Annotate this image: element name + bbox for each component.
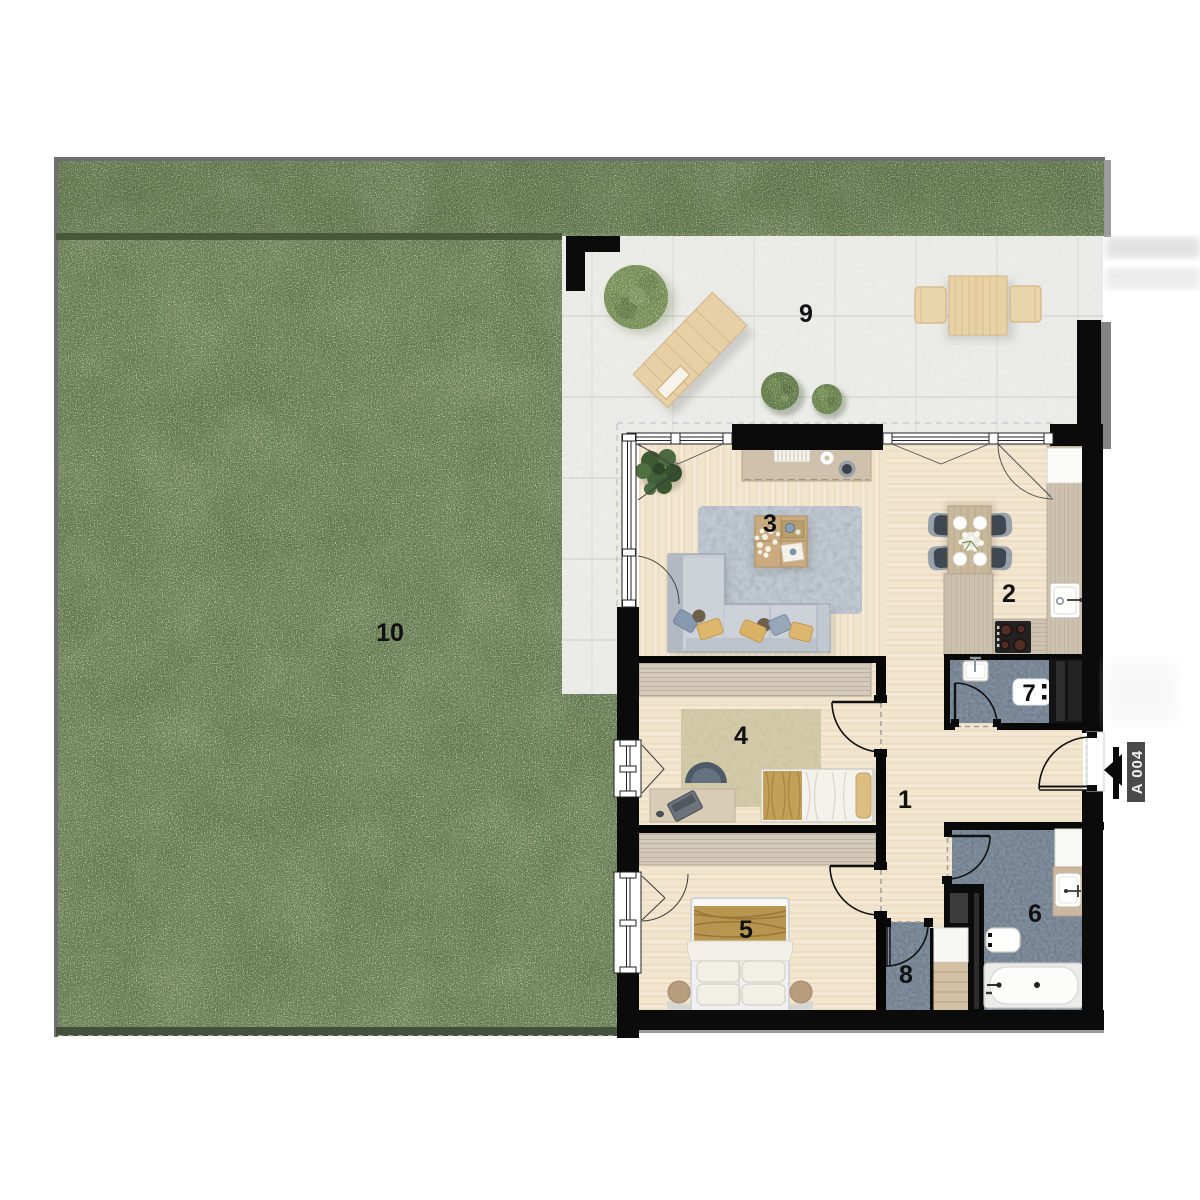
svg-text:1: 1 [898,786,912,814]
svg-text:A 004: A 004 [1129,750,1146,794]
svg-text:5: 5 [739,916,753,944]
svg-text:3: 3 [763,510,777,538]
svg-text:10: 10 [376,619,404,647]
svg-text:7: 7 [1022,680,1035,707]
svg-text:2: 2 [1002,580,1016,608]
svg-text:6: 6 [1028,900,1042,928]
svg-text:4: 4 [734,722,748,750]
svg-text:8: 8 [899,961,913,989]
svg-text:9: 9 [799,300,813,328]
